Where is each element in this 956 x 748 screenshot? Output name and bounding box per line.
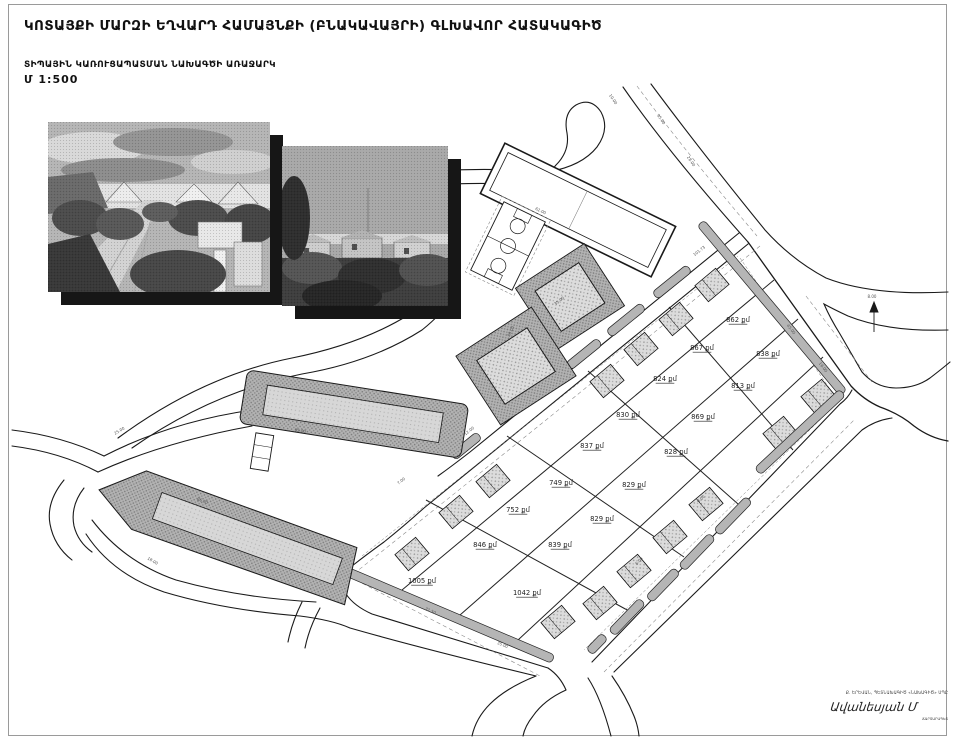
drawing-sheet: 862 քմ838 քմ867 քմ824 քմ813 քմ830 քմ869 … <box>0 0 956 748</box>
stamp-role-label: ՃԱՐՏԱՐԱՊԵՏ <box>800 717 948 722</box>
parcel-area-label: 752 քմ <box>506 506 530 514</box>
dimension-label: 35.00 <box>656 113 667 126</box>
house-footprint <box>617 554 651 587</box>
apartment-slab-upper <box>239 370 469 458</box>
site-plan: 862 քմ838 քմ867 քմ824 քմ813 քմ830 քմ869 … <box>0 0 956 748</box>
photo-inset-rooftop-view <box>282 146 448 306</box>
parcel-area-label: 837 քմ <box>580 442 604 450</box>
drawing-title: ԿՈՏԱՅՔԻ ՄԱՐԶԻ ԵՂՎԱՐԴ ՀԱՄԱՅՆՔԻ (ԲՆԱԿԱՎԱՅՐ… <box>24 18 644 34</box>
parcel-area-label: 829 քմ <box>622 481 646 489</box>
parcel-area-label: 829 քմ <box>590 515 614 523</box>
parcel-area-label: 1042 քմ <box>513 589 542 597</box>
house-footprint <box>395 537 429 570</box>
parcel-area-label: 828 քմ <box>664 448 688 456</box>
photo-inset-street-perspective <box>48 122 270 292</box>
parcel-area-label: 869 քմ <box>691 413 715 421</box>
parcel-area-label: 838 քմ <box>756 350 780 358</box>
house-footprint <box>439 495 473 528</box>
house-footprint <box>624 332 658 365</box>
drawing-subtitle: ՏԻՊԱՅԻՆ ԿԱՌՈՒՑԱՊԱՏՄԱՆ ՆԱԽԱԳԾԻ ԱՌԱՋԱՐԿ <box>24 60 644 70</box>
sidewalk-strip <box>586 633 608 655</box>
house-footprint <box>689 487 723 520</box>
house-footprint <box>659 302 693 335</box>
parcel-area-label: 749 քմ <box>549 479 573 487</box>
parcel-area-label: 813 քմ <box>731 382 755 390</box>
house-footprint <box>653 520 687 553</box>
rooftop-rendering-image <box>282 146 448 306</box>
dimension-label: 95.00 <box>294 427 307 434</box>
drawing-scale: Մ 1:500 <box>24 73 644 86</box>
house-footprint <box>476 464 510 497</box>
street-rendering-image <box>48 122 270 292</box>
apartment-slab-lower <box>90 458 364 607</box>
sidewalk-strip <box>566 338 603 370</box>
parcel-boundary-line <box>518 357 823 640</box>
setback-dashed-line <box>584 412 828 650</box>
parcel-area-label: 824 քմ <box>653 375 677 383</box>
dimension-label: 101.73 <box>692 244 706 257</box>
house-footprint <box>695 268 729 301</box>
architect-signature: Ավանեսյան Մ <box>799 698 950 716</box>
dimension-label: 7.00 <box>396 476 406 486</box>
parcel-area-label: 867 քմ <box>690 344 714 352</box>
north-arrow <box>870 302 878 332</box>
title-block: ԿՈՏԱՅՔԻ ՄԱՐԶԻ ԵՂՎԱՐԴ ՀԱՄԱՅՆՔԻ (ԲՆԱԿԱՎԱՅՐ… <box>24 18 644 86</box>
parcel-area-label: 1005 քմ <box>408 577 437 585</box>
dimension-label: 10.00 <box>608 93 619 106</box>
stamp-fine-print: Ք. ԵՐԵՎԱՆ, ՊԵՏՆԱԽԱԳԻԾ «ՆԱԽԱԳԻԾ» ՍՊԸ <box>800 690 948 696</box>
house-footprint <box>583 586 617 619</box>
parcel-area-label: 846 քմ <box>473 541 497 549</box>
dimension-label: 8.00 <box>868 294 877 299</box>
entrance-structure <box>250 433 273 471</box>
dimension-label: 18.00 <box>147 556 160 566</box>
parcel-area-label: 862 քմ <box>726 316 750 324</box>
parcel-area-label: 839 քմ <box>548 541 572 549</box>
signature-block: Ք. ԵՐԵՎԱՆ, ՊԵՏՆԱԽԱԳԻԾ «ՆԱԽԱԳԻԾ» ՍՊԸ Ավան… <box>800 690 948 722</box>
house-footprint <box>541 605 575 638</box>
dimension-label: 28.00 <box>686 155 697 168</box>
parcel-area-label: 830 քմ <box>616 411 640 419</box>
